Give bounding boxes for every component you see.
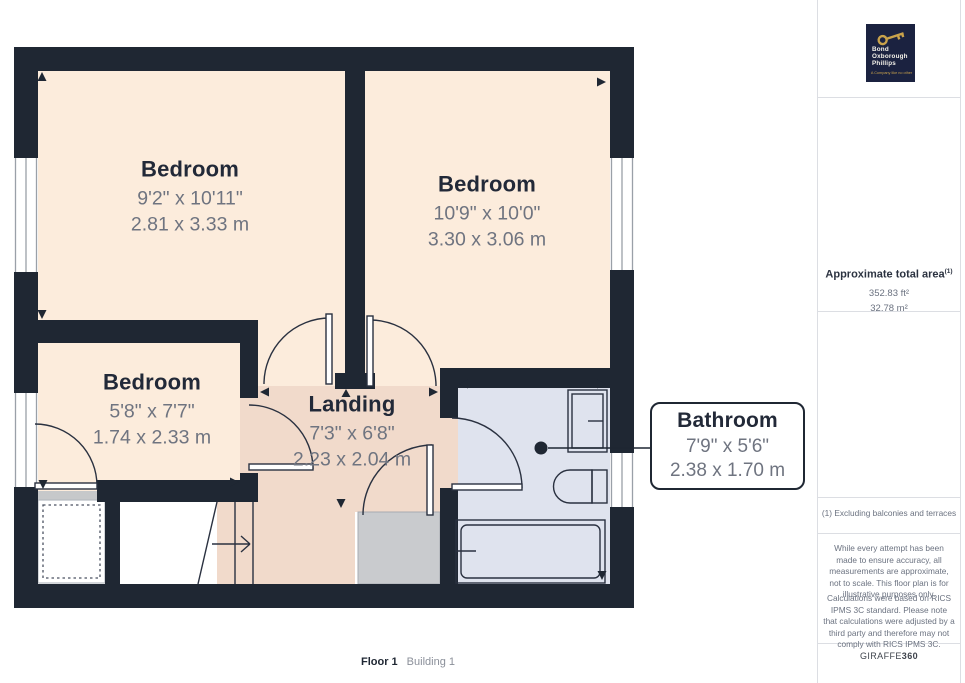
area-metric: 32.78 m²: [818, 301, 960, 316]
logo-tagline: A Company like no other: [871, 71, 912, 75]
room-name: Bedroom: [131, 157, 249, 183]
disclaimer-rics: Calculations were based on RICS IPMS 3C …: [823, 593, 955, 651]
logo-text-line: Oxborough: [872, 53, 908, 60]
sidebar-divider-left: [817, 0, 818, 683]
room-name: Bedroom: [428, 172, 546, 198]
floor-label: Floor 1: [361, 656, 398, 668]
room-dim-metric: 2.38 x 1.70 m: [670, 459, 785, 483]
floorplan-page: Bedroom 9'2" x 10'11" 2.81 x 3.33 m Bedr…: [0, 0, 965, 683]
storage-cupboard: [38, 500, 105, 583]
window-right-bedroom2: [610, 158, 634, 270]
room-label-landing: Landing 7'3" x 6'8" 2.23 x 2.04 m: [293, 392, 411, 473]
sidebar-section-line: [818, 533, 960, 534]
brand-suffix: 360: [902, 651, 918, 661]
room-dim-imperial: 7'9" x 5'6": [686, 435, 769, 459]
area-title-sup: (1): [945, 268, 953, 275]
landing-floor-doorway-left: [240, 398, 258, 473]
callout-anchor-dot: [535, 442, 548, 455]
area-footnote: (1) Excluding balconies and terraces: [820, 508, 958, 518]
area-title-text: Approximate total area: [825, 269, 944, 281]
landing-floor-doorway-bath: [440, 418, 458, 488]
area-title: Approximate total area(1): [818, 268, 960, 281]
room-dim-metric: 2.23 x 2.04 m: [293, 447, 411, 473]
agency-logo: Bond Oxborough Phillips A Company like n…: [866, 24, 915, 82]
stair-floor: [198, 502, 355, 584]
window-left-bedroom3: [14, 393, 38, 487]
stair-void: [120, 502, 217, 584]
room-label-bedroom-2: Bedroom 10'9" x 10'0" 3.30 x 3.06 m: [428, 172, 546, 253]
window-left-bedroom1: [14, 158, 38, 272]
disclaimer-accuracy: While every attempt has been made to ens…: [823, 543, 955, 601]
window-right-bathroom: [610, 453, 634, 507]
area-imperial: 352.83 ft²: [818, 286, 960, 301]
logo-text-line: Phillips: [872, 60, 896, 67]
building-label: Building 1: [407, 656, 455, 668]
approximate-area-block: Approximate total area(1) 352.83 ft² 32.…: [818, 268, 960, 316]
floorplan-drawing: [0, 0, 965, 683]
airing-cupboard: [358, 512, 440, 584]
giraffe360-brand: GIRAFFE360: [818, 651, 960, 661]
sidebar-section-line: [818, 497, 960, 498]
room-dim-metric: 1.74 x 2.33 m: [93, 425, 211, 451]
sidebar-section-line: [818, 97, 960, 98]
room-dim-imperial: 7'3" x 6'8": [293, 421, 411, 447]
room-dim-metric: 3.30 x 3.06 m: [428, 227, 546, 253]
key-icon: [874, 24, 909, 48]
room-name: Bathroom: [677, 409, 778, 433]
room-label-bedroom-1: Bedroom 9'2" x 10'11" 2.81 x 3.33 m: [131, 157, 249, 238]
room-dim-imperial: 9'2" x 10'11": [131, 186, 249, 212]
room-name: Bedroom: [93, 370, 211, 396]
room-dim-imperial: 5'8" x 7'7": [93, 399, 211, 425]
room-dim-imperial: 10'9" x 10'0": [428, 201, 546, 227]
threshold-strip: [38, 491, 105, 500]
room-name: Landing: [293, 392, 411, 418]
brand-name: GIRAFFE: [860, 651, 902, 661]
bathroom-callout: Bathroom 7'9" x 5'6" 2.38 x 1.70 m: [650, 402, 805, 490]
floor-building-label: Floor 1Building 1: [361, 656, 455, 668]
sidebar-divider-right: [960, 0, 961, 683]
room-dim-metric: 2.81 x 3.33 m: [131, 212, 249, 238]
room-label-bedroom-3: Bedroom 5'8" x 7'7" 1.74 x 2.33 m: [93, 370, 211, 451]
